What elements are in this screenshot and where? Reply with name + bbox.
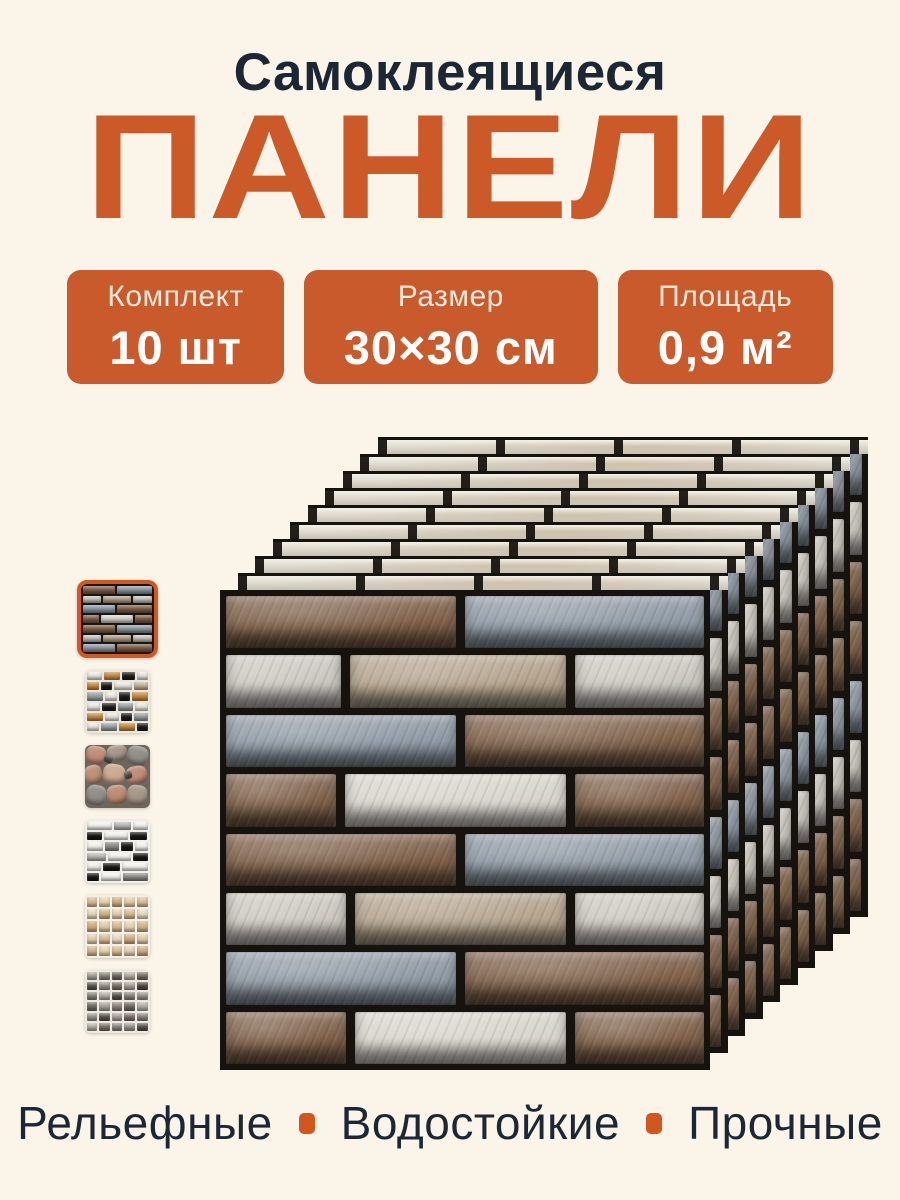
product-image-area <box>0 430 900 1090</box>
badge-kit: Комплект 10 шт <box>67 270 283 384</box>
badge-size-value: 30×30 см <box>344 320 558 375</box>
product-card: Самоклеящиеся ПАНЕЛИ Комплект 10 шт Разм… <box>0 0 900 1200</box>
thumbnail-marble-brick-black-white <box>85 820 150 883</box>
badge-size: Размер 30×30 см <box>304 270 598 384</box>
thumbnail-flagstone <box>85 745 150 808</box>
feature-durable: Прочные <box>688 1096 883 1150</box>
thumbnail-mosaic-gray-brown <box>85 970 150 1033</box>
badge-area-value: 0,9 м² <box>658 320 793 375</box>
badges-row: Комплект 10 шт Размер 30×30 см Площадь 0… <box>0 270 900 384</box>
product-title-text: ПАНЕЛИ <box>85 92 814 241</box>
panel-stack <box>220 437 868 1071</box>
features-row: Рельефные Водостойкие Прочные <box>0 1096 900 1150</box>
badge-kit-label: Комплект <box>107 280 243 314</box>
panel-front <box>220 590 710 1070</box>
thumbnail-gallery <box>72 580 162 1033</box>
badge-kit-value: 10 шт <box>109 320 242 375</box>
product-title: ПАНЕЛИ <box>0 92 900 241</box>
thumbnail-brick-orange-black-marble <box>85 670 150 733</box>
thumbnail-mosaic-beige <box>85 895 150 958</box>
badge-area-label: Площадь <box>658 280 792 314</box>
bullet-icon <box>299 1113 315 1134</box>
badge-area: Площадь 0,9 м² <box>618 270 833 384</box>
feature-relief: Рельефные <box>17 1096 273 1150</box>
bullet-icon <box>646 1113 662 1134</box>
thumbnail-brick-brown-gray-selected <box>77 580 158 658</box>
badge-size-label: Размер <box>398 280 504 314</box>
feature-waterproof: Водостойкие <box>341 1096 620 1150</box>
